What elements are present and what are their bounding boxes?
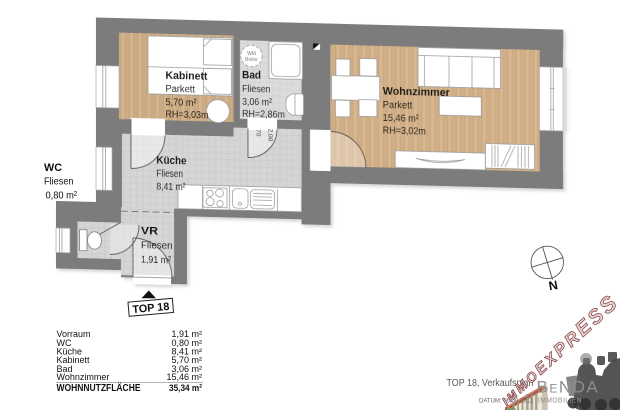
svg-text:RH=3,02m: RH=3,02m xyxy=(383,126,426,138)
svg-text:15,46 m²: 15,46 m² xyxy=(166,372,202,382)
svg-text:Parkett: Parkett xyxy=(383,100,413,112)
svg-text:70: 70 xyxy=(255,129,262,137)
svg-text:3,06 m²: 3,06 m² xyxy=(242,97,273,109)
svg-text:VR: VR xyxy=(141,225,158,237)
svg-text:WOHNNUTZFLÄCHE: WOHNNUTZFLÄCHE xyxy=(57,381,141,394)
svg-text:5,70 m²: 5,70 m² xyxy=(165,97,197,109)
svg-text:15,46 m²: 15,46 m² xyxy=(383,113,420,125)
svg-text:1,91 m²: 1,91 m² xyxy=(141,255,172,267)
svg-text:Parkett: Parkett xyxy=(165,84,195,96)
svg-text:Wohnzimmer: Wohnzimmer xyxy=(383,85,451,99)
svg-text:N: N xyxy=(548,278,559,293)
svg-text:Fliesen: Fliesen xyxy=(44,177,74,188)
svg-text:Fliesen: Fliesen xyxy=(157,169,184,181)
svg-text:RH=3,03m: RH=3,03m xyxy=(165,110,208,122)
svg-text:BENDA: BENDA xyxy=(537,378,600,397)
svg-text:Küche: Küche xyxy=(157,155,187,168)
svg-text:Fliesen: Fliesen xyxy=(141,240,173,252)
svg-text:Bad: Bad xyxy=(242,69,261,81)
svg-text:2,00: 2,00 xyxy=(266,128,273,141)
svg-text:Fliesen: Fliesen xyxy=(242,84,271,96)
svg-text:8,41 m²: 8,41 m² xyxy=(157,181,187,193)
svg-text:TOP 18: TOP 18 xyxy=(132,301,170,316)
svg-text:Kabinett: Kabinett xyxy=(165,70,207,83)
svg-text:Boiler: Boiler xyxy=(245,57,258,63)
svg-text:RH=2,86m: RH=2,86m xyxy=(242,109,285,121)
svg-text:Wohnzimmer: Wohnzimmer xyxy=(57,372,110,382)
svg-text:0,80 m²: 0,80 m² xyxy=(46,191,78,202)
svg-text:WC: WC xyxy=(44,162,62,174)
svg-text:IMMOBILIEN: IMMOBILIEN xyxy=(538,397,582,404)
svg-text:35,34 m²: 35,34 m² xyxy=(169,383,202,394)
